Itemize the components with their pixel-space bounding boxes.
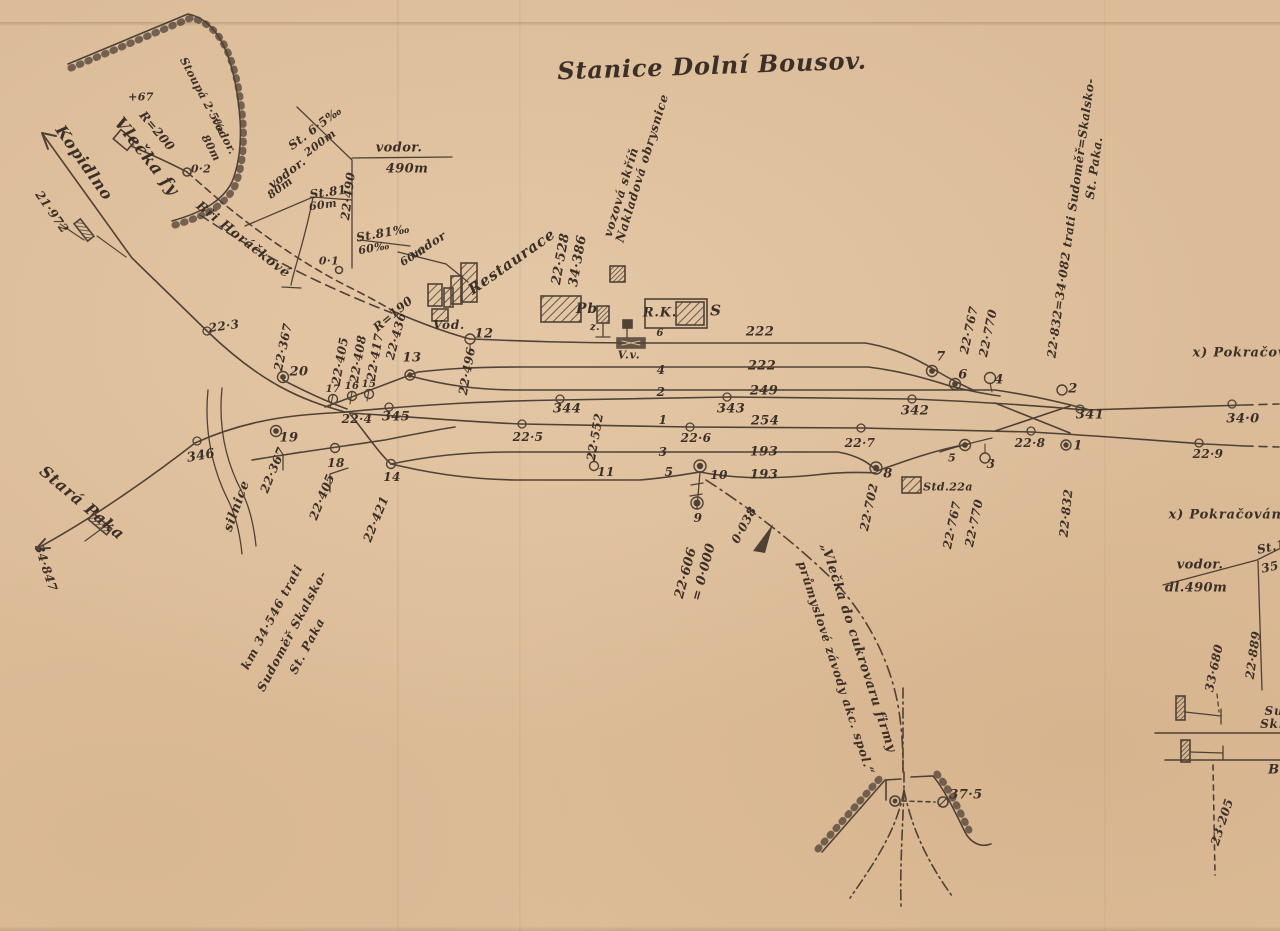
signal-br-2	[1181, 740, 1190, 762]
km-22-9-label: 22·9	[1193, 448, 1224, 460]
length-254-label: 254	[751, 415, 779, 428]
track-5	[391, 464, 876, 508]
signal-kopidlno	[74, 219, 94, 241]
point-14-label: 14	[383, 471, 401, 483]
track-4	[418, 367, 1000, 396]
point-13-label: 13	[403, 352, 422, 365]
km-22-4-label: 22·4	[342, 413, 373, 425]
wagon-box	[610, 266, 625, 282]
point-3-label: 3	[987, 458, 996, 470]
km-22-5-label: 22·5	[513, 431, 544, 443]
continuation-note-bottom: x) Pokračování	[1169, 509, 1280, 522]
plus-67-label: +67	[128, 92, 154, 103]
point-11-label: 11	[597, 466, 615, 478]
vodor-b-label: vodor.	[376, 142, 423, 155]
n-35-label: 35	[1260, 559, 1280, 574]
b-label: B	[1268, 764, 1280, 777]
point-19-label: 19	[280, 432, 299, 445]
vodor-dl-label: vodor.	[1177, 559, 1224, 572]
point-2-label: 2	[1068, 383, 1077, 396]
direction-arrow	[753, 524, 773, 553]
track-2-number: 2	[657, 386, 666, 398]
point-7-label: 7	[936, 351, 945, 364]
km-22-6-label: 22·6	[681, 432, 712, 444]
post-345-label: 345	[382, 411, 410, 424]
main-line-2	[350, 413, 1279, 447]
dl-490m-label: dl.490m	[1165, 582, 1227, 595]
s-label: S	[710, 304, 722, 319]
point-20-label: 20	[290, 366, 309, 379]
sk-label: Sk:	[1260, 718, 1280, 730]
pb-label: Pb	[576, 302, 598, 316]
length-193-b-label: 193	[750, 469, 778, 482]
length-193-a-label: 193	[750, 446, 778, 459]
km-22-7-label: 22·7	[845, 437, 876, 449]
length-222-b-label: 222	[748, 360, 776, 373]
post-34-0-label: 34·0	[1226, 413, 1259, 426]
m-490-label: 490m	[386, 163, 429, 176]
track-5-number: 5	[665, 466, 674, 478]
std-22a-label: Std.22a	[923, 482, 973, 493]
point-0-2-label: 0·2	[191, 164, 211, 175]
main-line-1	[345, 397, 1279, 412]
point-9-label: 9	[694, 512, 703, 524]
point-1-label: 1	[1073, 440, 1082, 453]
signal-br-1	[1176, 696, 1185, 720]
rk-label: R.K.	[643, 307, 677, 320]
point-12-label: 12	[475, 328, 494, 341]
z-label: z.	[590, 323, 600, 333]
point-6-label: 6	[958, 369, 967, 382]
point-4-label: 4	[994, 374, 1003, 387]
continuation-note-top: x) Pokračování	[1193, 347, 1280, 360]
km-37-5-label: 37·5	[949, 789, 982, 802]
point-10-label: 10	[710, 469, 728, 481]
post-342-label: 342	[901, 405, 929, 418]
length-249-label: 249	[750, 385, 778, 398]
km-22-8-label: 22·8	[1015, 437, 1046, 449]
point-8-label: 8	[883, 468, 892, 481]
point-5-label: 5	[948, 453, 956, 464]
track-6-number: 6	[656, 329, 663, 339]
post-344-label: 344	[553, 403, 581, 416]
track-1-number: 1	[659, 414, 668, 426]
line-to-stara-paka	[36, 412, 350, 549]
post-343-label: 343	[717, 403, 745, 416]
flag-signal	[623, 320, 632, 338]
warehouse-building	[541, 296, 581, 322]
track-6	[470, 339, 975, 391]
point-0-1-label: 0·1	[319, 256, 339, 267]
std-22a-hut	[902, 477, 921, 493]
water-crane	[617, 338, 645, 348]
point-17-label: 17	[326, 385, 341, 395]
point-15-label: 15	[362, 380, 377, 390]
post-341-label: 341	[1076, 409, 1104, 422]
length-222-a-label: 222	[746, 326, 774, 339]
vod-label: Vod.	[433, 319, 465, 331]
point-18-label: 18	[327, 457, 345, 469]
track-3-number: 3	[659, 446, 668, 458]
point-16-label: 16	[345, 382, 360, 392]
su-label: Su	[1265, 705, 1280, 717]
vv-label: V.v.	[618, 350, 641, 361]
track-4-number: 4	[657, 364, 666, 376]
